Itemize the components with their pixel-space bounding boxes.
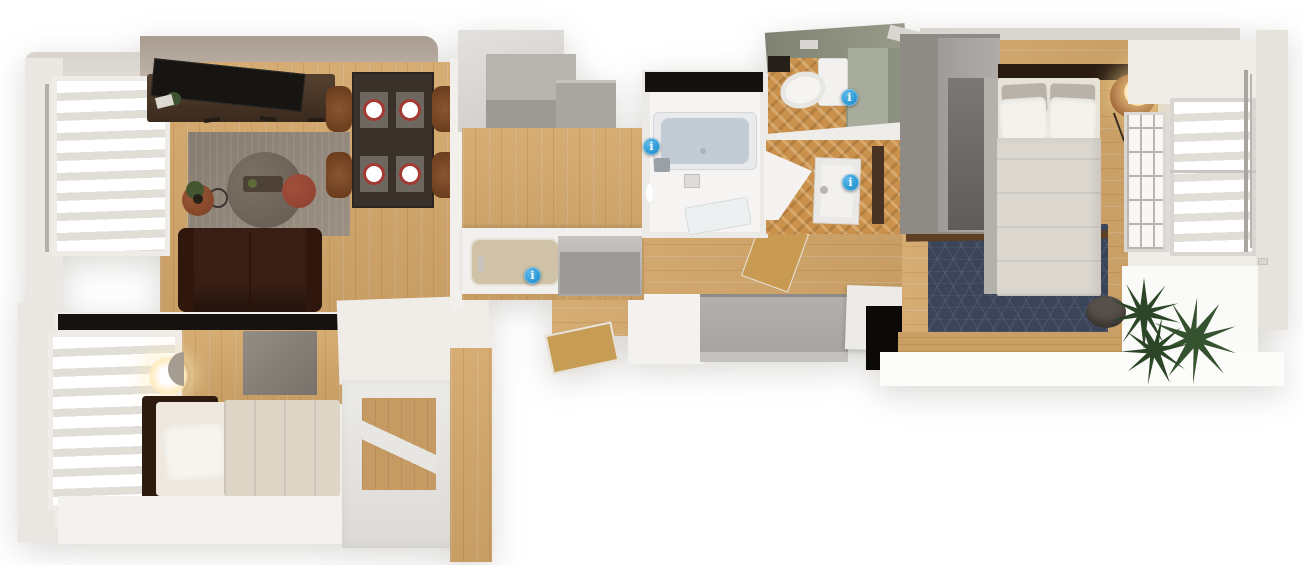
entrance-step xyxy=(700,352,848,362)
small-bedroom-wall-trim xyxy=(58,314,350,330)
sofa-arm-right xyxy=(306,228,322,312)
floor-mark-3 xyxy=(308,118,324,122)
hallway-white-floor xyxy=(628,294,704,364)
sink-faucet xyxy=(478,256,484,272)
info-marker-glyph: i xyxy=(847,92,851,103)
dinner-plate xyxy=(399,163,421,185)
dinner-plate xyxy=(363,99,385,121)
wardrobe-mirror xyxy=(948,78,988,230)
bathtub-drain xyxy=(700,148,706,154)
stove-top xyxy=(560,252,640,294)
living-window-rail xyxy=(45,84,49,252)
wall-outlet xyxy=(1258,258,1268,265)
closet-wood-panel xyxy=(450,348,492,562)
toilet-remote xyxy=(800,40,818,49)
plant-pot xyxy=(1086,296,1126,328)
single-bed-pillow xyxy=(162,422,228,482)
bed-pillow xyxy=(1048,97,1097,141)
entrance-tile-floor xyxy=(700,294,848,360)
info-marker-glyph: i xyxy=(530,270,534,281)
dinner-plate xyxy=(399,99,421,121)
bath-faucet xyxy=(654,158,670,172)
shower-drain xyxy=(684,174,700,188)
wall-tapestry xyxy=(243,331,317,395)
dining-chair xyxy=(326,86,352,132)
bedroom-outer-wall-right xyxy=(1256,30,1288,330)
dining-chair xyxy=(326,152,352,198)
washroom-door-frame xyxy=(872,146,884,224)
window-rail xyxy=(1244,70,1248,252)
dinner-plate xyxy=(363,163,385,185)
red-side-table xyxy=(282,174,316,208)
balcony-floor-bottom xyxy=(880,352,1284,386)
sofa-arm-left xyxy=(178,228,194,312)
info-marker-glyph: i xyxy=(649,141,653,152)
floorplan-canvas: i i i i xyxy=(0,0,1303,565)
window-rail-inner xyxy=(1250,74,1252,248)
bedroom-window-wall-upper xyxy=(1128,40,1256,104)
bathtub-basin xyxy=(661,118,749,164)
shoji-window xyxy=(1124,112,1166,252)
apartment-render xyxy=(0,0,1303,565)
double-bed-duvet xyxy=(997,138,1101,296)
toilet-corner-shadow xyxy=(768,56,790,72)
floorplan-stage: i i i i xyxy=(0,0,1303,565)
bed-pillow xyxy=(999,96,1049,141)
bedroom-bottom-wall-wood xyxy=(898,332,1122,352)
tray-plant xyxy=(248,179,257,188)
small-bedroom-floor xyxy=(58,496,354,544)
sofa-cushion-split xyxy=(249,232,251,308)
info-marker-glyph: i xyxy=(848,177,852,188)
bathroom-wall-trim xyxy=(645,72,763,92)
bathroom-door-handle xyxy=(646,184,653,202)
info-marker-bathroom[interactable]: i xyxy=(643,138,660,155)
info-marker-washroom[interactable]: i xyxy=(842,174,859,191)
info-marker-toilet[interactable]: i xyxy=(841,89,858,106)
single-bed-duvet xyxy=(224,400,340,496)
shelf-cubby xyxy=(362,398,436,490)
bedside-lamp-shade xyxy=(168,352,200,386)
washroom-door-knob xyxy=(820,186,828,194)
side-table-pot xyxy=(193,194,203,204)
info-marker-kitchen[interactable]: i xyxy=(524,267,541,284)
